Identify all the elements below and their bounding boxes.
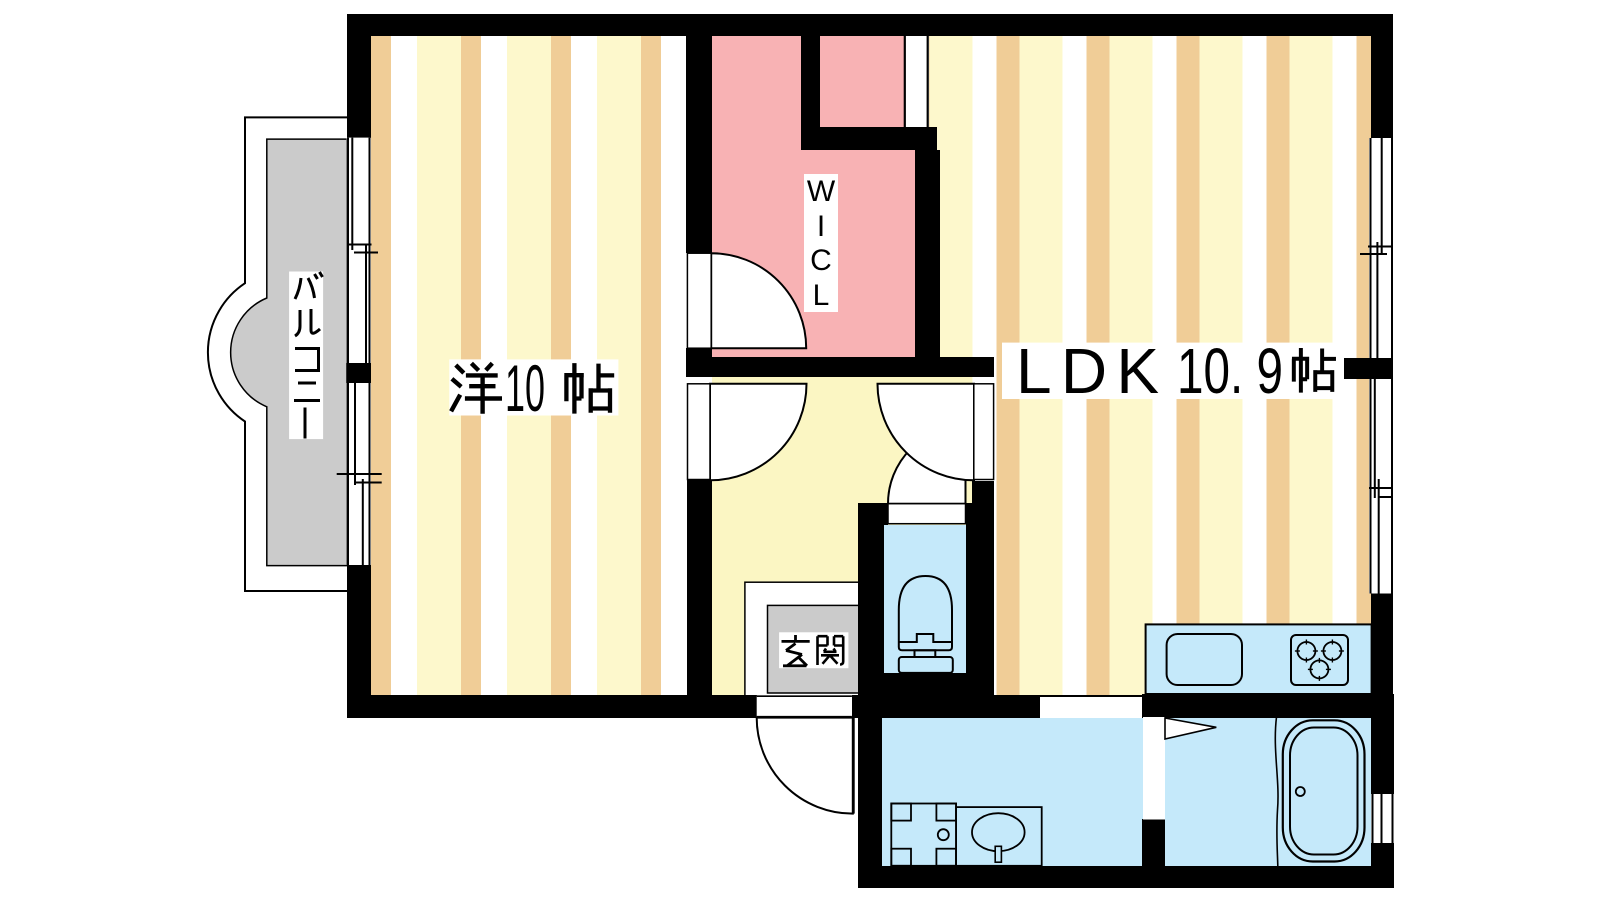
svg-text:LDK: LDK	[1016, 335, 1159, 407]
svg-text:W: W	[807, 175, 836, 208]
svg-text:I: I	[817, 210, 825, 243]
svg-text:C: C	[810, 244, 832, 277]
svg-text:L: L	[813, 279, 830, 312]
svg-text:10. 9: 10. 9	[1177, 335, 1283, 407]
svg-text:10: 10	[505, 351, 545, 425]
